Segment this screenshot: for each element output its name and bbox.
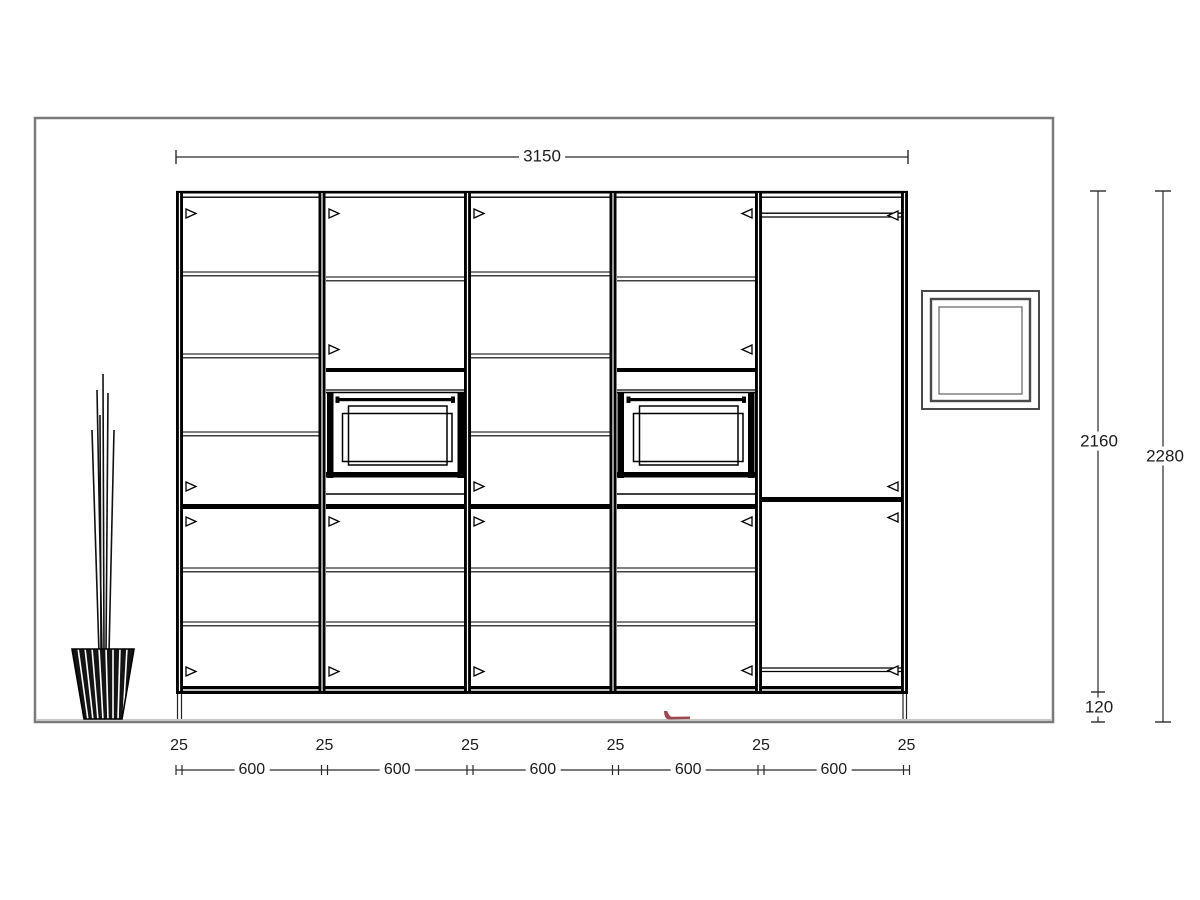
plant — [72, 374, 134, 720]
tall-cabinet-4-oven-housing — [617, 277, 755, 626]
oven-handle — [336, 397, 456, 403]
dim-label-unit-width: 600 — [380, 761, 415, 779]
dimension-height-cabinet — [1090, 191, 1106, 722]
door-swing-arrows — [186, 209, 898, 676]
oven-2 — [617, 392, 755, 478]
dim-label-plinth-height: 120 — [1081, 698, 1117, 717]
dim-label-panel-width: 25 — [457, 737, 483, 755]
dim-label-panel-width: 25 — [166, 737, 192, 755]
wall-outline — [35, 118, 1053, 722]
tall-cabinet-2-oven-housing — [326, 277, 464, 626]
dim-label-unit-width: 600 — [525, 761, 560, 779]
dim-label-panel-width: 25 — [603, 737, 629, 755]
dim-label-unit-width: 600 — [816, 761, 851, 779]
dim-label-unit-width: 600 — [234, 761, 269, 779]
picture-frame — [922, 291, 1039, 409]
dim-label-panel-width: 25 — [748, 737, 774, 755]
dim-label-total-height: 2280 — [1142, 447, 1188, 466]
cabinet-side-panels — [176, 191, 908, 693]
dim-label-panel-width: 25 — [312, 737, 338, 755]
dim-label-cabinet-height: 2160 — [1076, 432, 1122, 451]
tall-cabinet-5 — [762, 213, 901, 671]
dim-label-panel-width: 25 — [894, 737, 920, 755]
elevation-drawing: 3150 2160 2280 120 25 25 25 25 25 25 600… — [0, 0, 1200, 900]
tall-cabinet-1 — [183, 272, 319, 626]
cabinet-legs — [178, 694, 907, 719]
dim-label-unit-width: 600 — [671, 761, 706, 779]
red-mark — [664, 711, 690, 720]
oven-handle — [627, 397, 747, 403]
cad-drawing — [0, 0, 1200, 900]
oven-1 — [326, 392, 464, 478]
closet-rod — [762, 213, 901, 217]
plant-sticks — [92, 374, 114, 653]
dim-label-total-width: 3150 — [519, 147, 565, 166]
bottom-rail — [762, 668, 901, 672]
tall-cabinet-3 — [471, 272, 610, 626]
vase — [72, 648, 134, 720]
cabinet-run — [176, 191, 908, 719]
